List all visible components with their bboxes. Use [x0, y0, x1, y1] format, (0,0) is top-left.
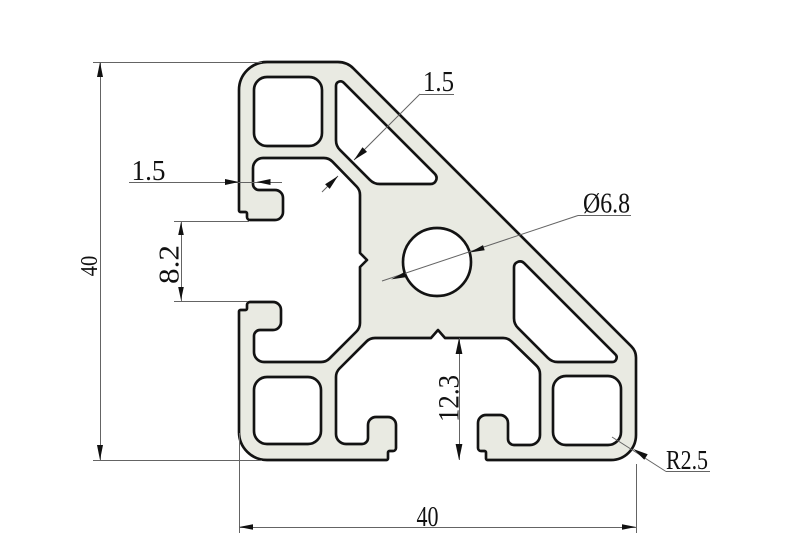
svg-text:1.5: 1.5 — [132, 156, 166, 187]
svg-text:1.5: 1.5 — [423, 67, 454, 98]
svg-text:R2.5: R2.5 — [666, 445, 708, 475]
svg-text:40: 40 — [417, 502, 439, 533]
svg-text:40: 40 — [77, 256, 103, 277]
svg-text:12.3: 12.3 — [433, 375, 466, 422]
svg-text:Ø6.8: Ø6.8 — [583, 189, 630, 220]
svg-text:8.2: 8.2 — [155, 245, 186, 284]
